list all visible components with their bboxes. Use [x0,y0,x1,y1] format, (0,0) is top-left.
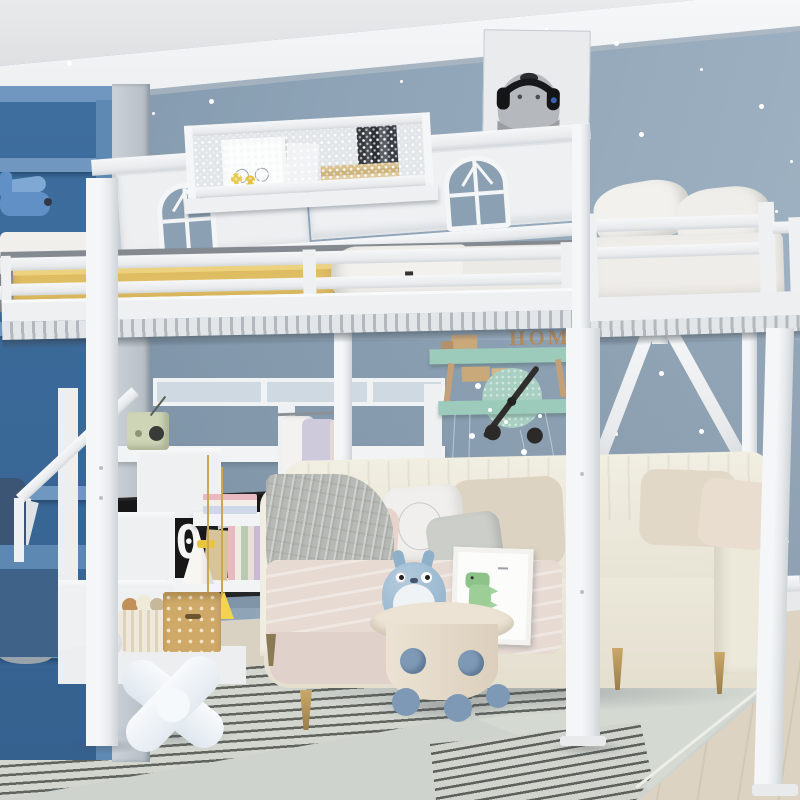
patterned-storage-box [163,592,221,652]
tassel-string [207,455,209,605]
screw-hole [580,472,584,476]
dino-eye [471,576,474,579]
screw-hole [99,466,103,470]
bedroom-photo: 10 39 [0,0,800,800]
table-foot [392,688,420,716]
desk-front [0,569,58,657]
plush-center [156,688,190,722]
guardrail-post [303,249,317,293]
wicker-basket [118,598,168,654]
basket-body [118,610,168,652]
table-dot [458,650,484,676]
string-light-bulbs [0,0,4,4]
radio-speaker [149,426,164,441]
totoro-pupil [425,575,430,580]
tassel-string [221,467,223,607]
headboard-corner-post [572,124,590,334]
leg-foot [752,784,798,796]
bed-leg-front-wide [566,328,600,740]
plane-strut [555,359,567,397]
side-table [370,540,520,730]
frosted-cabinets [153,378,445,406]
table-foot [486,684,510,708]
handrail-post [14,498,24,562]
table-dot [400,648,426,674]
toy-plane-propeller [44,198,52,206]
art-marks [498,567,508,569]
totoro-nose [410,578,418,583]
plane-strut [444,363,455,403]
screw-hole [99,496,103,500]
bed-foot-section [575,173,800,350]
radio-knob [135,430,142,437]
stair-step [117,512,175,582]
wood-block [441,341,453,349]
mesh-shelf [184,112,435,218]
leg-foot [560,736,606,746]
totoro-pupil [399,575,404,580]
table-foot [444,694,472,722]
dino-spike [490,587,498,595]
frosted-door [157,382,261,402]
radio [127,412,169,450]
guardrail-post [1,256,12,302]
frosted-door [267,382,367,402]
toy-plane [0,170,56,222]
screw-hole [580,590,584,594]
plush-x-toy [108,660,238,752]
box-handle [185,614,201,619]
wood-block [462,366,490,381]
toy-plane-tail [0,172,12,198]
